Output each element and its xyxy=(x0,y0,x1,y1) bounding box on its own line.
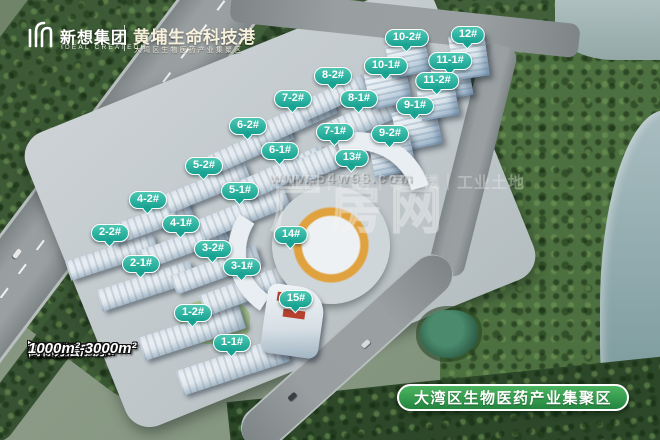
building-label-5-2: 5-2# xyxy=(185,157,223,175)
building-label-8-1: 8-1# xyxy=(340,90,378,108)
cluster-banner-text: 大湾区生物医药产业集聚区 xyxy=(414,387,612,408)
building-label-13: 13# xyxy=(335,149,369,167)
ideal-createch-logo-icon xyxy=(27,20,53,48)
cluster-banner: 大湾区生物医药产业集聚区 xyxy=(397,384,629,411)
aerial-render-poster: 厂房网 www.54w98.com 产业园｜厂房｜写字楼｜工业土地 10-2#1… xyxy=(0,0,660,440)
building-label-14: 14# xyxy=(274,226,308,244)
building-label-2-2: 2-2# xyxy=(91,224,129,242)
building-label-2-1: 2-1# xyxy=(122,255,160,273)
building-label-15: 15# xyxy=(279,290,313,308)
building-label-11-2: 11-2# xyxy=(415,72,459,90)
building-label-9-2: 9-2# xyxy=(371,125,409,143)
stat-value: 1000m²-3000m² xyxy=(28,340,136,357)
building-label-3-1: 3-1# xyxy=(223,258,261,276)
building-label-1-1: 1-1# xyxy=(213,334,251,352)
building-label-4-1: 4-1# xyxy=(162,215,200,233)
building-label-9-1: 9-1# xyxy=(396,97,434,115)
header: 新想集团 IDEAL CREATECH 黄埔生命科技港 大湾区生物医药产业集聚区 xyxy=(0,0,660,70)
building-label-6-2: 6-2# xyxy=(229,117,267,135)
vehicle xyxy=(361,339,371,349)
building-label-7-1: 7-1# xyxy=(316,123,354,141)
building-label-7-2: 7-2# xyxy=(274,90,312,108)
building-label-3-2: 3-2# xyxy=(194,240,232,258)
vehicle xyxy=(287,392,297,402)
building-label-5-1: 5-1# xyxy=(221,182,259,200)
building-label-6-1: 6-1# xyxy=(261,142,299,160)
building-label-4-2: 4-2# xyxy=(129,191,167,209)
project-subtitle: 大湾区生物医药产业集聚区 xyxy=(134,45,243,55)
header-divider xyxy=(124,25,125,51)
vehicle xyxy=(12,248,22,259)
building-label-1-2: 1-2# xyxy=(174,304,212,322)
